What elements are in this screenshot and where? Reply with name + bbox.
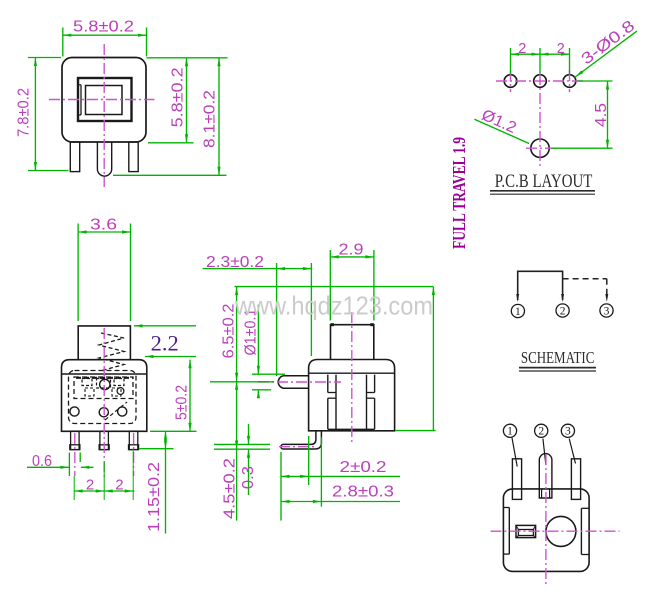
svg-text:0.6: 0.6 <box>32 453 52 470</box>
svg-text:1: 1 <box>515 306 521 318</box>
svg-text:SCHEMATIC: SCHEMATIC <box>521 348 595 367</box>
svg-text:2.3±0.2: 2.3±0.2 <box>206 254 264 271</box>
svg-text:2.2: 2.2 <box>151 330 179 355</box>
svg-text:www.hqdz123.com: www.hqdz123.com <box>234 291 433 321</box>
svg-text:FULL TRAVEL 1.9: FULL TRAVEL 1.9 <box>449 137 469 249</box>
svg-text:4.5±0.2: 4.5±0.2 <box>222 458 239 519</box>
svg-text:5.8±0.2: 5.8±0.2 <box>170 67 187 127</box>
svg-text:5.8±0.2: 5.8±0.2 <box>73 19 134 36</box>
svg-text:P.C.B LAYOUT: P.C.B LAYOUT <box>495 171 593 192</box>
svg-text:2: 2 <box>518 41 526 57</box>
svg-text:2: 2 <box>560 305 566 317</box>
svg-text:2: 2 <box>557 41 565 57</box>
svg-text:4.5: 4.5 <box>593 103 610 127</box>
svg-text:3: 3 <box>565 426 571 438</box>
svg-text:7.8±0.2: 7.8±0.2 <box>16 88 33 137</box>
svg-text:1: 1 <box>507 426 513 438</box>
svg-text:2±0.2: 2±0.2 <box>340 459 387 476</box>
svg-text:3: 3 <box>604 305 610 317</box>
svg-text:2: 2 <box>115 477 123 494</box>
svg-text:2: 2 <box>538 426 544 438</box>
svg-text:2.9: 2.9 <box>339 242 364 259</box>
svg-text:0.3: 0.3 <box>240 466 257 489</box>
svg-text:8.1±0.2: 8.1±0.2 <box>201 90 218 148</box>
svg-text:2.8±0.3: 2.8±0.3 <box>332 484 394 501</box>
svg-text:1.15±0.2: 1.15±0.2 <box>146 462 163 532</box>
svg-text:2: 2 <box>86 477 94 494</box>
svg-text:3.6: 3.6 <box>90 217 117 234</box>
svg-text:5±0.2: 5±0.2 <box>174 385 191 420</box>
